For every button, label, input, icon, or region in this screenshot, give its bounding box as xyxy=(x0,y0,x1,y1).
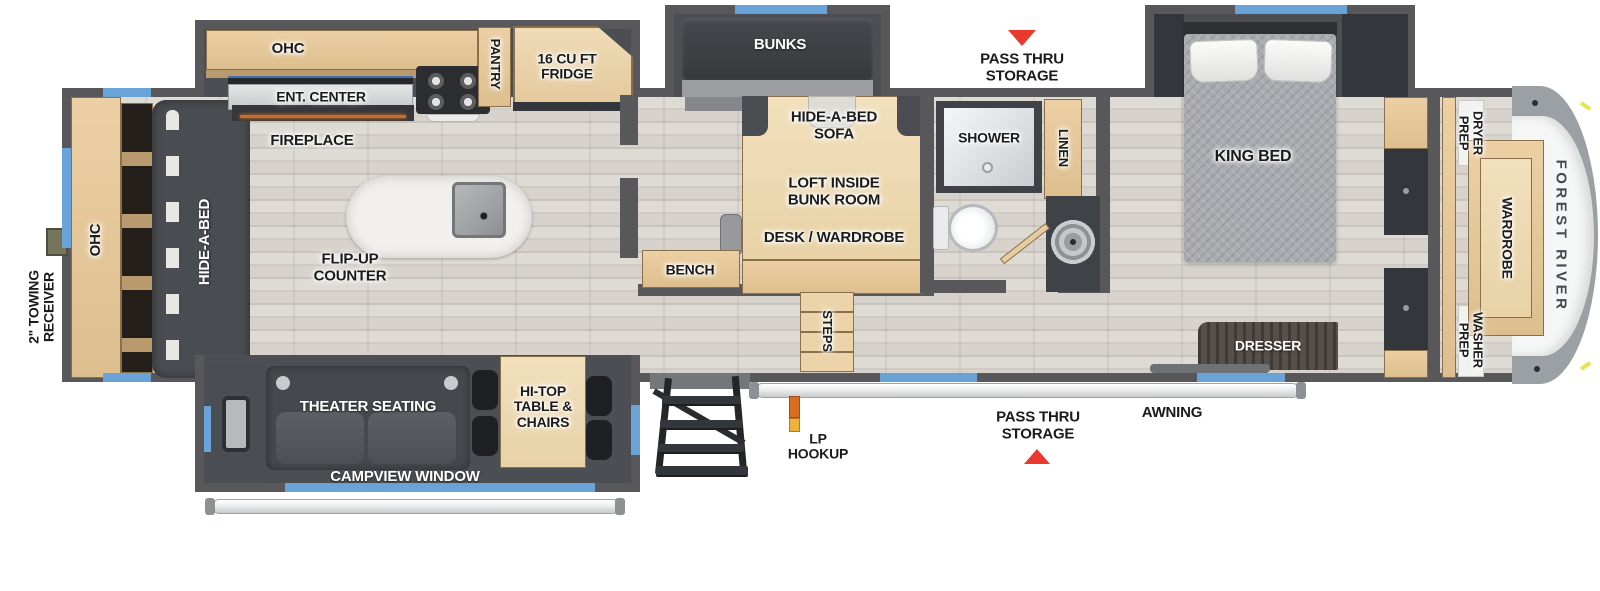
rear-shelf-cubbies xyxy=(121,103,153,373)
awning-label: AWNING xyxy=(1142,405,1202,422)
bedroom-front-wall xyxy=(1428,95,1440,380)
entry-door-window-strip xyxy=(204,406,211,452)
hi-top-label: HI-TOP TABLE & CHAIRS xyxy=(502,384,584,430)
kitchen-ohc-cabinet xyxy=(206,30,478,70)
front-closet-wall xyxy=(1442,97,1456,378)
king-window xyxy=(1235,5,1347,14)
rear-hide-a-bed-label: HIDE-A-BED xyxy=(197,199,214,285)
bath-left-wall xyxy=(920,95,934,293)
awning-tube-rear xyxy=(212,499,620,514)
step-tread-3 xyxy=(658,444,744,454)
stove-vent xyxy=(426,114,480,122)
bottom-window-a xyxy=(880,373,977,382)
bench-label: BENCH xyxy=(666,262,715,277)
rear-top-window xyxy=(103,88,151,97)
dryer-prep-label: DRYER PREP xyxy=(1456,102,1485,164)
sofa-cushion-stripes xyxy=(166,110,179,368)
fireplace-unit xyxy=(232,105,414,121)
fridge-base xyxy=(513,102,633,111)
awning-tube-front xyxy=(755,383,1300,398)
king-wardrobe-left xyxy=(1154,14,1184,97)
rear-side-window xyxy=(62,148,71,248)
pantry-label: PANTRY xyxy=(488,24,502,104)
step-tread-4 xyxy=(656,466,748,477)
king-bed-label: KING BED xyxy=(1215,148,1292,166)
flip-up-counter-label: FLIP-UP COUNTER xyxy=(298,252,402,285)
dresser-label: DRESSER xyxy=(1235,338,1301,353)
toilet-tank xyxy=(933,206,949,250)
campview-side-window xyxy=(631,405,640,455)
step-tread-2 xyxy=(660,420,742,430)
lp-hookup-nozzle xyxy=(789,396,800,418)
nose-marker-top xyxy=(1580,101,1591,111)
awning-cap-rear-left xyxy=(205,498,215,515)
theater-cushion-right xyxy=(368,412,456,464)
theater-cushion-left xyxy=(276,412,364,464)
linen-label: LINEN xyxy=(1056,113,1070,183)
awning-arm xyxy=(1150,364,1270,373)
brand-logo: FOREST RIVER xyxy=(1552,160,1569,313)
bedroom-cabinet-bottom xyxy=(1384,350,1428,378)
desk-wardrobe-label: DESK / WARDROBE xyxy=(764,230,904,247)
washer-prep-label: WASHER PREP xyxy=(1456,306,1485,374)
rv-floorplan: FOREST RIVER 2" TOWING RECEIVER OHC HIDE… xyxy=(0,0,1600,591)
nose-screw-top xyxy=(1532,100,1538,106)
loft-armrest-left xyxy=(742,96,768,136)
bunk-step xyxy=(682,80,873,97)
towing-receiver-label: 2" TOWING RECEIVER xyxy=(27,257,58,357)
cabinet-handle-lower xyxy=(1403,305,1409,311)
king-pillow-right xyxy=(1263,39,1332,83)
theater-cupholder-right xyxy=(444,376,458,390)
fireplace-flame xyxy=(240,115,406,118)
rear-ohc-label: OHC xyxy=(88,210,105,270)
step-tread-1 xyxy=(662,396,740,406)
bedroom-cabinet-top xyxy=(1384,97,1428,149)
bunkroom-desk-band xyxy=(742,260,923,294)
kitchen-ohc-label: OHC xyxy=(258,41,318,58)
entry-steps xyxy=(652,372,752,482)
bunks-window xyxy=(735,5,827,14)
theater-cupholder-left xyxy=(276,376,290,390)
island-sink xyxy=(452,182,506,238)
campview-window-label: CAMPVIEW WINDOW xyxy=(330,469,479,486)
ent-center-label: ENT. CENTER xyxy=(276,89,366,104)
king-wardrobe-right xyxy=(1342,14,1408,97)
bath-bottom-wall-left xyxy=(920,280,1006,293)
hi-top-chair-3 xyxy=(586,376,612,416)
cabinet-handle-upper xyxy=(1403,188,1409,194)
nose-screw-bottom xyxy=(1534,366,1540,372)
pass-thru-bottom-label: PASS THRU STORAGE xyxy=(978,410,1098,443)
fridge-label: 16 CU FT FRIDGE xyxy=(525,52,610,83)
rear-bottom-window xyxy=(103,373,151,382)
entry-door-window xyxy=(222,396,250,452)
pass-thru-top-indicator-icon xyxy=(1008,30,1036,46)
hi-top-chair-2 xyxy=(472,416,498,456)
loft-label: LOFT INSIDE BUNK ROOM xyxy=(767,176,902,209)
lp-hookup-label: LP HOOKUP xyxy=(781,432,855,463)
hide-a-bed-sofa-label: HIDE-A-BED SOFA xyxy=(772,110,897,143)
tv-bar xyxy=(228,76,413,84)
toilet-bowl xyxy=(948,204,998,252)
steps-label: STEPS xyxy=(820,296,834,366)
fireplace-label: FIREPLACE xyxy=(257,133,367,150)
awning-cap-front-left xyxy=(749,382,759,399)
awning-cap-rear-right xyxy=(615,498,625,515)
shower-pan xyxy=(944,108,1034,186)
wall-stub-b xyxy=(620,178,638,258)
bath-vanity-sink xyxy=(1046,196,1100,292)
nose-marker-bottom xyxy=(1580,361,1591,371)
shower-drain xyxy=(982,162,993,173)
wall-stub-a xyxy=(620,95,638,145)
hi-top-chair-4 xyxy=(586,420,612,460)
pass-thru-bottom-indicator-icon xyxy=(1024,449,1050,464)
front-wardrobe-label: WARDROBE xyxy=(1499,197,1514,279)
shower-label: SHOWER xyxy=(958,130,1020,145)
awning-cap-front-right xyxy=(1296,382,1306,399)
theater-seating-label: THEATER SEATING xyxy=(300,399,436,416)
bottom-window-b xyxy=(1197,373,1285,382)
bunks-label: BUNKS xyxy=(754,37,806,54)
king-pillow-left xyxy=(1189,39,1258,83)
hi-top-chair-1 xyxy=(472,370,498,410)
lp-hookup-valve xyxy=(789,418,800,432)
pass-thru-top-label: PASS THRU STORAGE xyxy=(962,52,1082,85)
